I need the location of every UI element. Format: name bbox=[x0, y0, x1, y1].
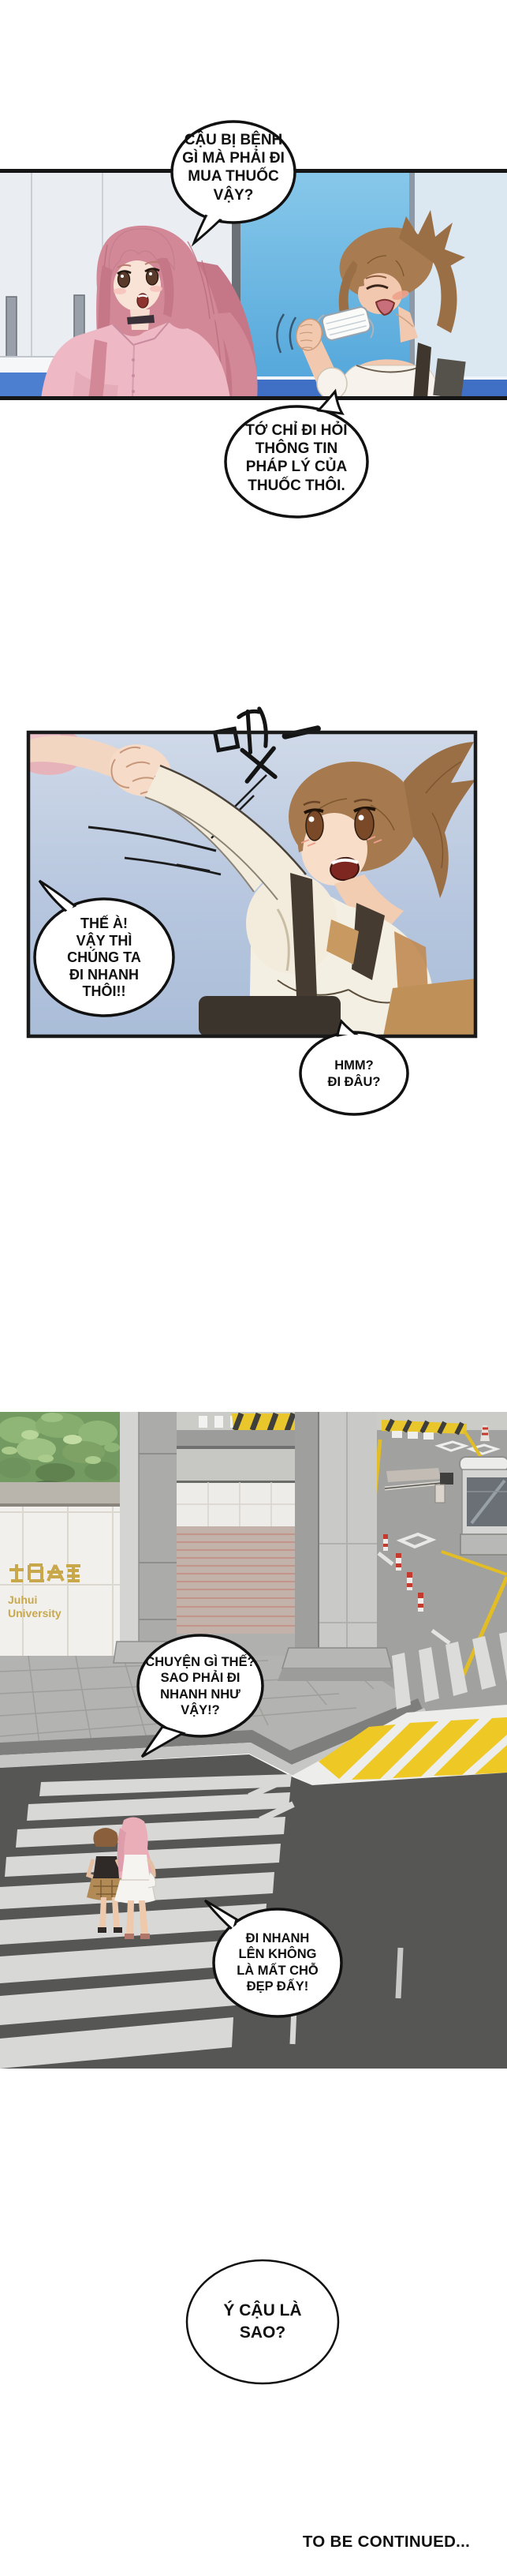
svg-text:Juhui: Juhui bbox=[8, 1593, 37, 1606]
svg-text:University: University bbox=[8, 1607, 62, 1619]
